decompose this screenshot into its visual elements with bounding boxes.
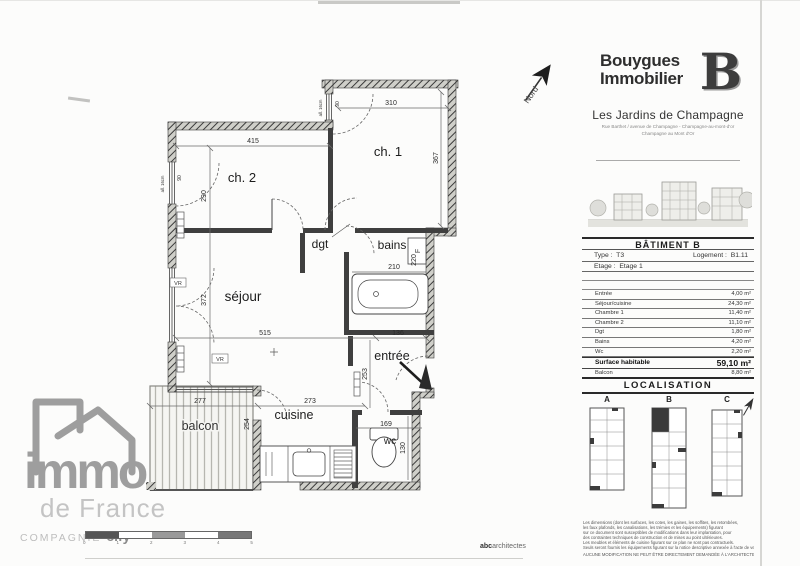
- sill-note-ch1: all. 16cm: [318, 99, 323, 116]
- dim-210: 210: [388, 264, 400, 271]
- room-wc: wc: [383, 436, 396, 447]
- empty-row: [582, 272, 754, 281]
- batiment-type-row: Type : T3 Logement : B1.11: [582, 250, 754, 262]
- bathtub: [352, 274, 428, 314]
- area-value: 24,30 m²: [728, 300, 754, 309]
- area-row: Entrée4,00 m²: [582, 290, 754, 300]
- logement-cell: Logement : B1.11: [693, 250, 754, 261]
- scale-numbers: 0 1 2 3 4 5: [83, 540, 253, 545]
- brand-mark-icon: B: [700, 42, 742, 101]
- dim-169: 169: [380, 421, 392, 428]
- info-panel: Bouygues Immobilier B Les Jardins de Cha…: [582, 40, 754, 560]
- localisation-map: A B C: [582, 392, 762, 518]
- room-sejour: séjour: [225, 289, 262, 304]
- dim-277: 277: [194, 398, 206, 405]
- dim-254: 254: [244, 418, 251, 430]
- brand-line2: Immobilier: [600, 70, 683, 88]
- areas-table: Entrée4,00 m² Séjour/cuisine24,30 m² Cha…: [582, 290, 754, 379]
- etage-cell: Etage : Etage 1: [582, 262, 754, 271]
- area-label: Chambre 2: [582, 319, 624, 328]
- scale-segment: [119, 532, 152, 538]
- residence-name: Les Jardins de Champagne: [582, 108, 754, 122]
- closet-label: F: [415, 249, 422, 253]
- toilet: [370, 428, 398, 467]
- agency-logo-immo: immo: [24, 446, 145, 496]
- legal-disclaimer: Les dimensions (dont les surfaces, les c…: [583, 520, 754, 557]
- scale-segment: [86, 532, 119, 538]
- area-row: Dgt1,80 m²: [582, 328, 754, 338]
- scale-bar: [85, 531, 252, 539]
- area-label: Wc: [582, 348, 603, 357]
- area-row: Chambre 111,40 m²: [582, 309, 754, 319]
- area-value: 1,80 m²: [731, 328, 754, 337]
- scale-segment: [218, 532, 251, 538]
- window-width-ch2: 90: [177, 175, 183, 181]
- divider: [596, 160, 740, 161]
- dim-273: 273: [304, 398, 316, 405]
- scale-tick: 0: [83, 540, 86, 545]
- scale-tick: 4: [217, 540, 220, 545]
- disclaimer-line: Seuls seront fournis les équipements fig…: [583, 545, 754, 550]
- residence-address-1: Rue Barthet / avenue de Champagne - Cham…: [582, 124, 754, 129]
- agency-logo-de-france: de France: [40, 495, 166, 521]
- room-bains: bains: [378, 238, 407, 252]
- type-cell: Type : T3: [582, 250, 693, 261]
- area-row: Chambre 211,10 m²: [582, 319, 754, 329]
- area-row: Séjour/cuisine24,30 m²: [582, 300, 754, 310]
- north-arrow: Nord: [518, 59, 558, 105]
- total-value: 59,10 m²: [717, 358, 754, 368]
- scanned-floorplan-page: Nord: [0, 0, 800, 566]
- vr-tag-slider: VR: [216, 357, 224, 363]
- window-width-ch1: 90: [335, 101, 341, 107]
- dgt-leader: [332, 224, 350, 237]
- dim-310: 310: [385, 100, 397, 107]
- area-row: Wc2,20 m²: [582, 348, 754, 358]
- room-dgt: dgt: [312, 237, 329, 251]
- area-label: Dgt: [582, 328, 604, 337]
- architect-credit: abcarchitectes: [480, 543, 526, 550]
- mini-north-arrow: [740, 396, 757, 417]
- batiment-title: BÂTIMENT B: [582, 237, 754, 250]
- dim-290: 290: [201, 190, 208, 202]
- dim-130: 130: [400, 442, 407, 454]
- scale-segment: [152, 532, 185, 538]
- room-balcon: balcon: [182, 419, 219, 433]
- dim-515: 515: [259, 330, 271, 337]
- logement-label: Logement :: [693, 252, 727, 259]
- dim-253: 253: [362, 368, 369, 380]
- area-value: 2,20 m²: [731, 348, 754, 357]
- sink: [293, 452, 325, 476]
- logement-value: B1.11: [731, 252, 748, 259]
- room-entree: entrée: [374, 349, 409, 363]
- area-label: Entrée: [582, 290, 612, 299]
- architect-name: abc: [480, 543, 492, 550]
- dim-367: 367: [433, 152, 440, 164]
- etage-value: Etage 1: [619, 263, 642, 270]
- scale-segment: [185, 532, 218, 538]
- disclaimer-line: AUCUNE MODIFICATION NE PEUT ÊTRE DIRECTE…: [583, 552, 754, 557]
- north-label: Nord: [521, 84, 540, 105]
- area-value: 4,20 m²: [731, 338, 754, 347]
- dim-372: 372: [201, 294, 208, 306]
- dim-136: 136: [392, 330, 404, 337]
- entry-door: [400, 362, 432, 390]
- area-row: Bains4,20 m²: [582, 338, 754, 348]
- light-point: [270, 348, 278, 356]
- area-label: Séjour/cuisine: [582, 300, 631, 309]
- area-value: 11,10 m²: [729, 319, 754, 328]
- area-value: 4,00 m²: [731, 290, 754, 299]
- brand-logo: Bouygues Immobilier: [600, 52, 683, 88]
- area-value: 11,40 m²: [729, 309, 754, 318]
- empty-row: [582, 281, 754, 290]
- highlighted-unit: [652, 408, 669, 432]
- building-b-outline: [652, 408, 686, 508]
- building-a-label: A: [604, 395, 610, 404]
- scale-tick: 5: [250, 540, 253, 545]
- scale-tick: 2: [150, 540, 153, 545]
- architect-suffix: architectes: [492, 543, 526, 550]
- etage-label: Etage :: [594, 263, 616, 270]
- kitchen-counter: [260, 446, 356, 482]
- dim-415: 415: [247, 138, 259, 145]
- building-a-outline: [590, 408, 624, 490]
- room-cuisine: cuisine: [275, 408, 314, 422]
- building-c-outline: [712, 410, 742, 496]
- type-label: Type :: [594, 252, 613, 259]
- vr-tag-window: VR: [174, 281, 182, 287]
- residence-sketch: [584, 170, 752, 232]
- type-value: T3: [616, 252, 624, 259]
- sill-note-ch2: all. 16cm: [160, 175, 165, 192]
- brand-line1: Bouygues: [600, 52, 683, 70]
- scale-tick: 3: [183, 540, 186, 545]
- room-ch1: ch. 1: [374, 144, 402, 159]
- batiment-etage-row: Etage : Etage 1: [582, 262, 754, 272]
- building-b-label: B: [666, 395, 672, 404]
- area-label: Bains: [582, 338, 610, 347]
- area-total-row: Surface habitable59,10 m²: [582, 357, 754, 369]
- area-label: Chambre 1: [582, 309, 624, 318]
- scale-tick: 1: [116, 540, 119, 545]
- room-ch2: ch. 2: [228, 170, 256, 185]
- drainer: [334, 450, 352, 478]
- building-c-label: C: [724, 395, 730, 404]
- total-label: Surface habitable: [582, 358, 650, 368]
- residence-address-2: Champagne au Mont d'Or: [582, 131, 754, 136]
- dim-220: 220: [411, 254, 418, 266]
